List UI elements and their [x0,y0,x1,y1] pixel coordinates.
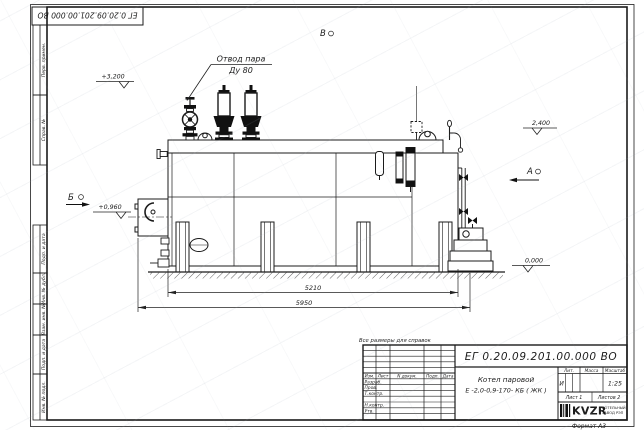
corner-doc-number: ЕГ 0.20.09.201.00.000 ВО [38,11,138,20]
margin-stamp: Подп. и дата [41,339,47,370]
steam-drum [168,140,443,153]
svg-text:В: В [320,29,326,39]
margin-stamp: Справ. № [41,119,47,142]
scale-header: Масштаб [605,368,626,374]
svg-text:0,000: 0,000 [525,258,543,265]
col-doc: N докум. [397,373,416,378]
row-nkontr: Н.контр. [365,403,385,409]
lit-value: И [559,381,564,388]
safety-valve-2 [241,85,262,140]
svg-text:Отвод пара: Отвод пара [217,55,266,64]
scale-value: 1:25 [608,381,622,388]
ground-hatch [148,272,505,279]
mass-header: Масса [585,368,599,374]
reference-note: Все размеры для справок [359,338,432,344]
svg-text:Ду 80: Ду 80 [228,66,253,75]
steam-valve [183,97,198,140]
margin-stamp: Подп. и дата [41,233,47,264]
burner [128,199,172,236]
view-mark-v: В [320,29,333,39]
row-razrab: Разраб. [365,379,382,385]
margin-stamp-labels: Перв. примен. Справ. № Подп. и дата Инв.… [41,43,47,413]
safety-valve-1 [214,85,235,140]
elevation-mark-drum: 2,400 [523,120,557,135]
elevation-mark-top: +3,200 [96,74,134,89]
support-leg [357,222,370,272]
svg-text:Б: Б [68,193,74,203]
row-utv: Утв. [365,408,374,414]
view-mark-b: Б [66,193,90,207]
manhole [190,239,208,252]
margin-stamp: Взам. инв. № [41,304,47,335]
sheets-label: Листов 2 [597,395,621,401]
col-podp: Подп. [426,373,439,378]
row-tkontr: Т.контр. [365,391,384,397]
elevation-mark-burner: +0,960 [93,204,131,219]
support-leg [261,222,274,272]
product-name-line1: Котел паровой [478,375,535,384]
lit-header: Лит. [563,368,574,374]
svg-text:2,400: 2,400 [532,120,550,127]
view-mark-a: А [509,167,540,182]
corner-doc-number-box: ЕГ 0.20.09.201.00.000 ВО [32,7,143,25]
company-line2: ЗАВОД РЭП [602,411,624,415]
dim-inner-text: 5210 [305,284,322,292]
company-line1: КОТЕЛЬНЫЙ [602,405,626,410]
margin-stamp: Инв. № подл. [41,381,47,413]
svg-text:А: А [526,167,533,177]
col-list: Лист [377,373,389,378]
support-leg [176,222,189,272]
col-data: Дата [442,373,454,378]
sheet-label: Лист 1 [565,395,583,401]
product-name-line2: Е -2,0-0,9-170- КБ ( ЖК ) [465,387,546,395]
margin-stamp: Инв. № дубл. [41,273,47,304]
svg-text:+3,200: +3,200 [101,74,124,81]
col-izm: Изм. [365,373,375,378]
elevation-mark-ground: 0,000 [512,258,550,273]
dim-overall-text: 5950 [296,299,313,307]
drawing-sheet: Перв. примен. Справ. № Подп. и дата Инв.… [0,0,644,430]
boiler-technical-drawing: Перв. примен. Справ. № Подп. и дата Инв.… [0,0,644,430]
company-logo: KVZR КОТЕЛЬНЫЙ ЗАВОД РЭП [560,404,626,418]
svg-text:+0,960: +0,960 [98,204,121,211]
doc-number: ЕГ 0.20.09.201.00.000 ВО [465,351,618,363]
row-prov: Пров. [365,385,378,391]
format-label: Формат А3 [572,423,606,430]
margin-stamp: Перв. примен. [41,43,47,78]
drum-domes [198,131,436,140]
